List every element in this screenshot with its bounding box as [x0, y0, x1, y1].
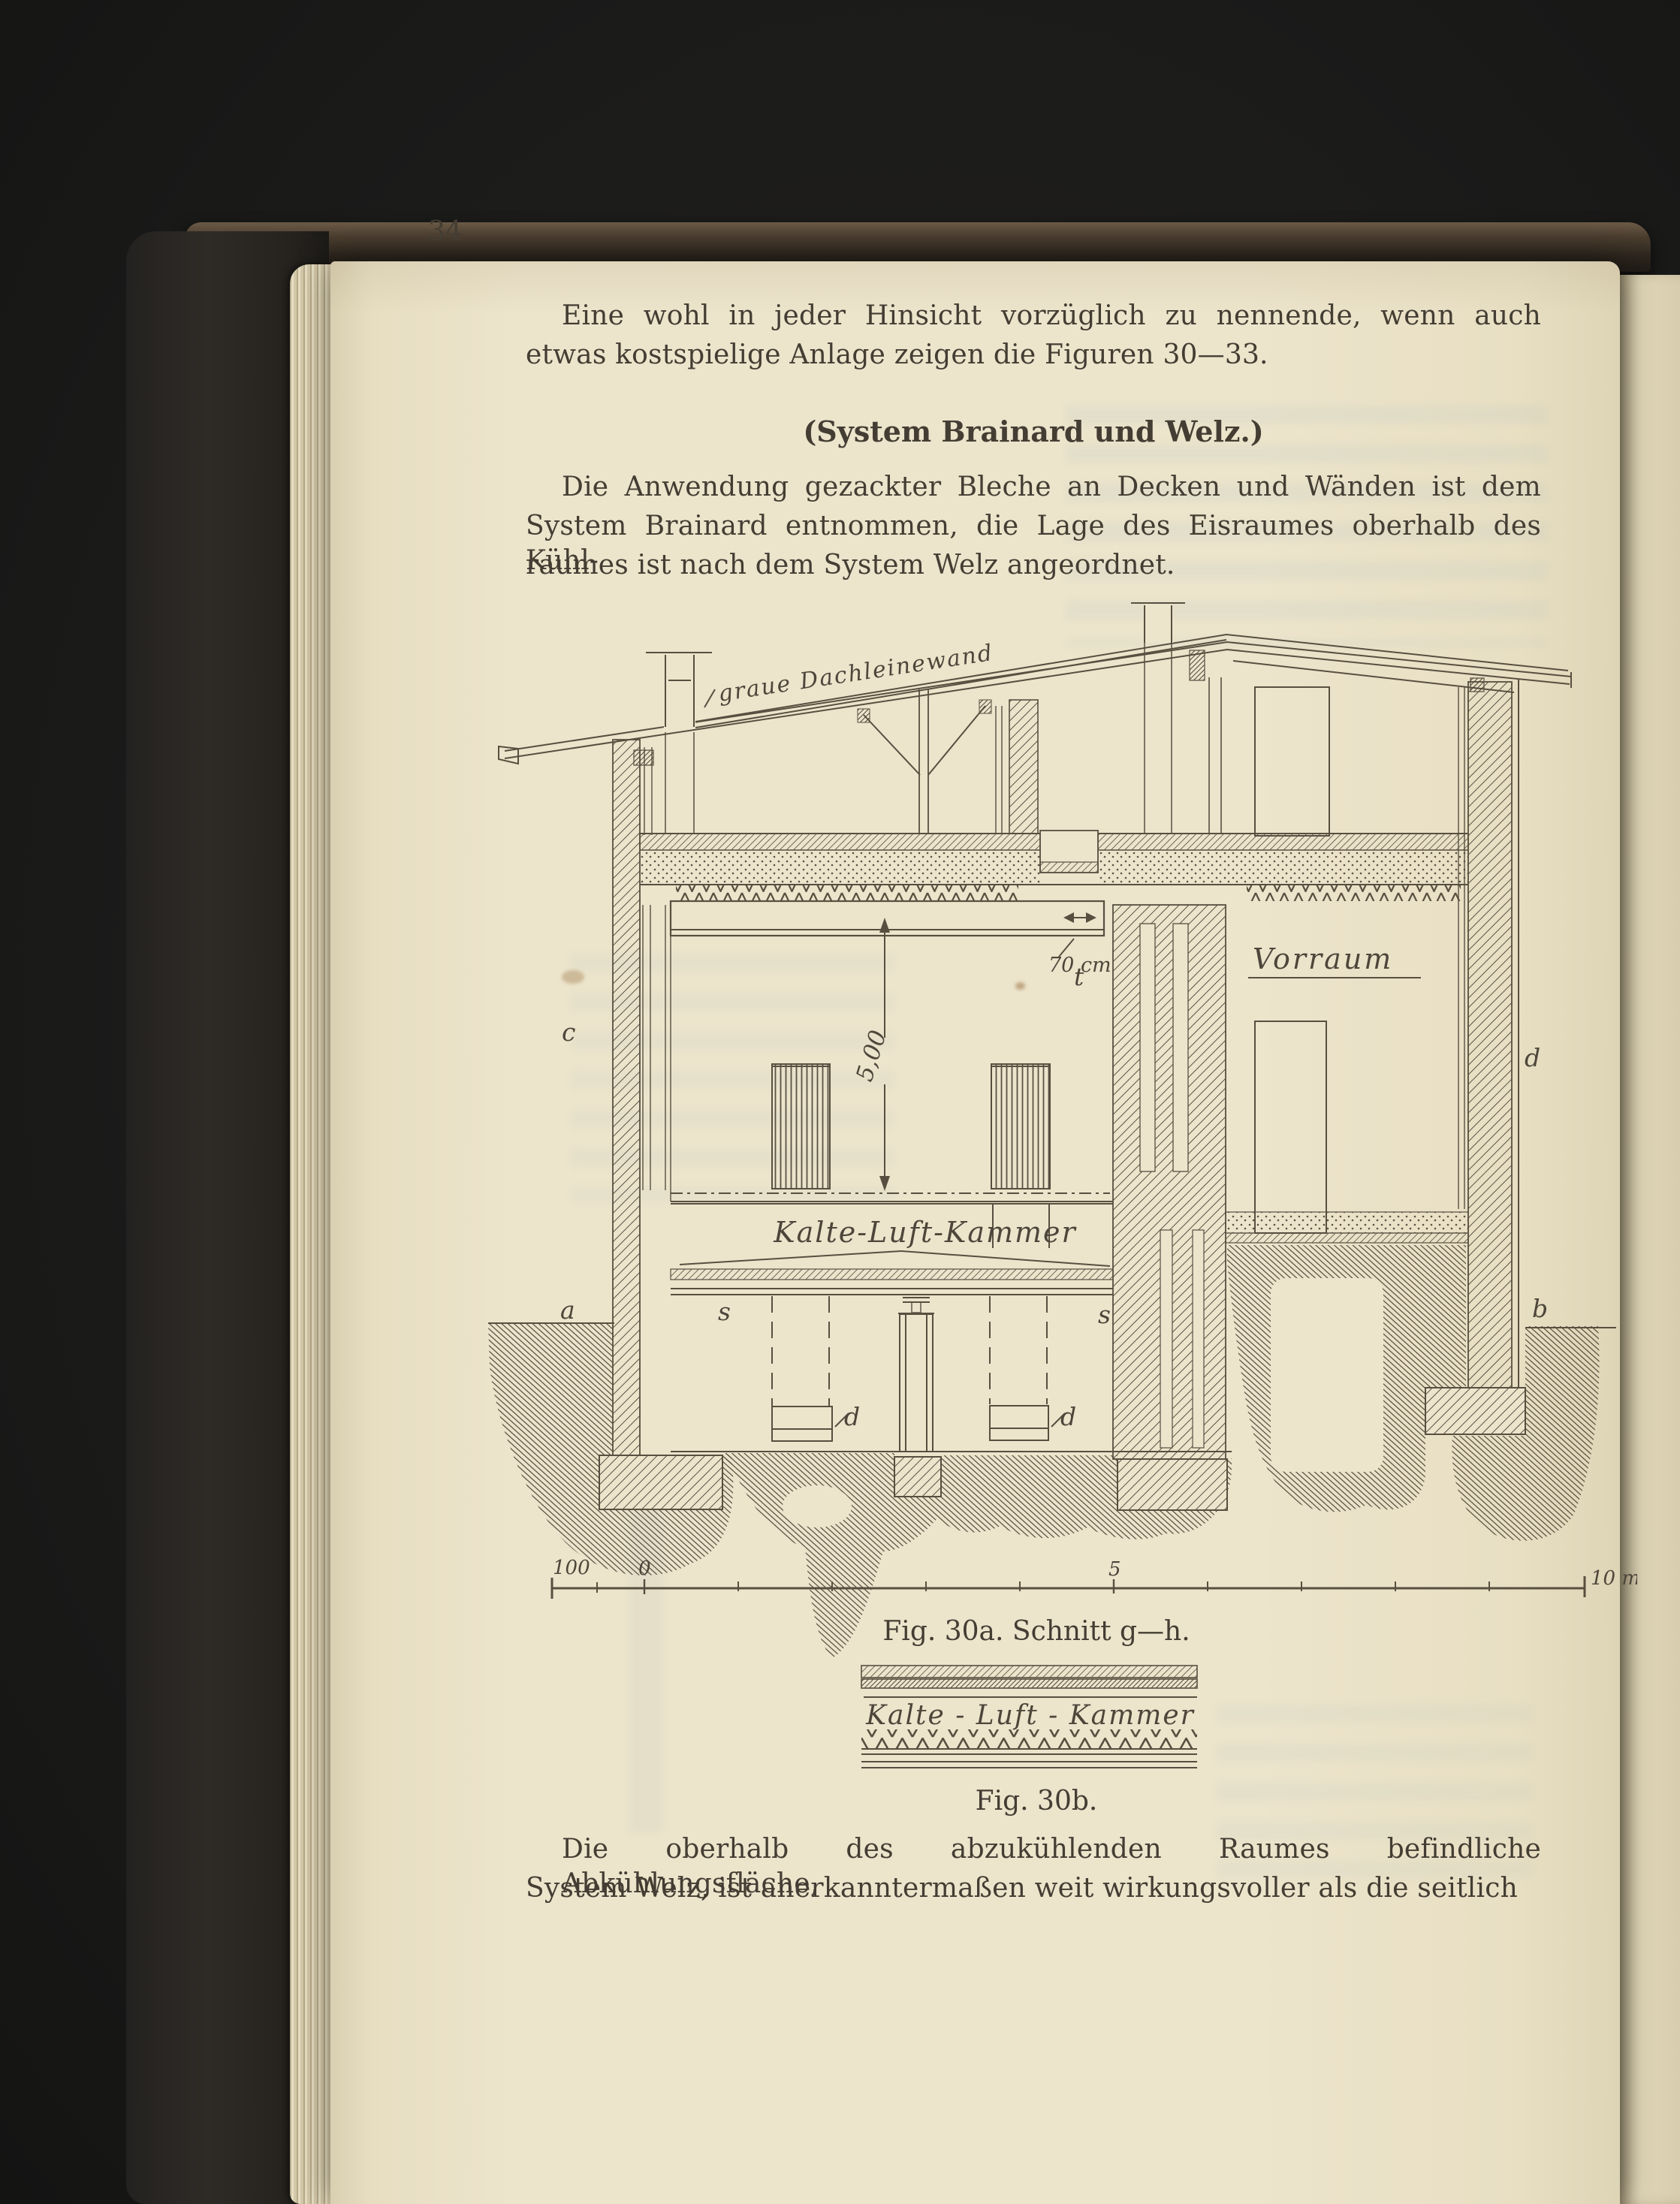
ceiling-air-duct: 70 cm — [671, 901, 1111, 977]
section-heading: (System Brainard und Welz.) — [526, 415, 1541, 448]
height-dim-label: 5,00 — [851, 1027, 892, 1085]
paragraph3-line2: System Welz, ist anerkanntermaßen weit w… — [526, 1871, 1541, 1906]
figure-30b-drawing: Kalte - Luft - Kammer — [861, 1666, 1197, 1768]
scale-label-5: 5 — [1108, 1558, 1121, 1581]
scanned-book-photo: 34 Eine wohl in jeder Hinsicht vorzüglic… — [0, 0, 1680, 2204]
excavation-shaft — [1271, 1278, 1383, 1472]
jagged-sheet-detail — [861, 1729, 1197, 1749]
letter-b: b — [1532, 1294, 1548, 1323]
right-outer-wall — [1468, 682, 1512, 1388]
scale-label-100: 100 — [553, 1557, 590, 1579]
insulated-door-leaf — [1173, 924, 1188, 1171]
letter-d-right: d — [1060, 1402, 1076, 1431]
left-vent-stack — [646, 653, 712, 728]
cold-air-chamber-label: Kalte-Luft-Kammer — [773, 1216, 1077, 1249]
paragraph1-line2: etwas kostspielige Anlage zeigen die Fig… — [526, 338, 1541, 372]
letter-s-left: s — [718, 1297, 731, 1326]
paragraph2-line3: raumes ist nach dem System Welz angeordn… — [526, 548, 1541, 583]
figure-30a-drawing: graue Dachleinewand — [481, 586, 1637, 1787]
cold-air-chamber: Kalte-Luft-Kammer — [671, 1204, 1113, 1280]
insulated-ceiling — [640, 831, 1468, 901]
scale-label-0: 0 — [638, 1557, 651, 1580]
scale-bar: 100 0 5 10 m. — [552, 1557, 1637, 1599]
scale-label-10m: 10 m. — [1591, 1567, 1637, 1590]
roof-label-leader — [704, 689, 715, 707]
drain-box-left: d — [772, 1402, 860, 1441]
wall-plate — [634, 750, 653, 765]
vorraum-door — [1255, 1021, 1326, 1233]
attic-door — [1255, 687, 1329, 836]
height-dimension: 5,00 — [851, 918, 892, 1191]
letter-d-wall: d — [1525, 1043, 1540, 1072]
wall-air-slot — [1193, 1230, 1204, 1448]
ridge-purlin — [1190, 650, 1205, 680]
letter-a: a — [560, 1295, 575, 1325]
ceiling-trap — [1040, 831, 1098, 873]
page-number: 34 — [428, 216, 463, 247]
wall-plate — [1470, 678, 1484, 692]
attic-partition — [1009, 700, 1038, 834]
paragraph1-line1: Eine wohl in jeder Hinsicht vorzüglich z… — [562, 299, 1541, 333]
letter-c: c — [562, 1018, 575, 1047]
drain-box-right: d — [990, 1402, 1076, 1440]
jagged-metal-sheets — [1247, 885, 1461, 901]
vorraum-label: Vorraum — [1253, 942, 1393, 975]
page-edge-stack — [290, 264, 335, 2204]
wall-air-slot — [1160, 1230, 1172, 1448]
center-column — [898, 1298, 934, 1452]
letter-t: t — [1074, 962, 1084, 991]
letter-s-right: s — [1098, 1300, 1111, 1329]
figure-30b-caption: Fig. 30b. — [796, 1786, 1277, 1817]
middle-partition-wall — [1113, 905, 1226, 1459]
roof-canvas-label: graue Dachleinewand — [716, 640, 995, 707]
purlin — [858, 709, 870, 722]
right-vent-stack — [1131, 603, 1185, 643]
insulated-door-leaf — [1140, 924, 1155, 1171]
jagged-metal-sheets — [676, 885, 1018, 901]
left-outer-wall — [613, 740, 640, 1455]
vorraum-floor — [1226, 1212, 1468, 1243]
letter-d-left: d — [844, 1402, 860, 1431]
paragraph2-line1: Die Anwendung gezackter Bleche an Decken… — [562, 470, 1541, 505]
fig30b-chamber-label: Kalte - Luft - Kammer — [865, 1700, 1195, 1731]
purlin — [979, 700, 991, 713]
slatted-racks — [772, 1064, 1050, 1189]
figure-30a-caption: Fig. 30a. Schnitt g—h. — [796, 1616, 1277, 1647]
